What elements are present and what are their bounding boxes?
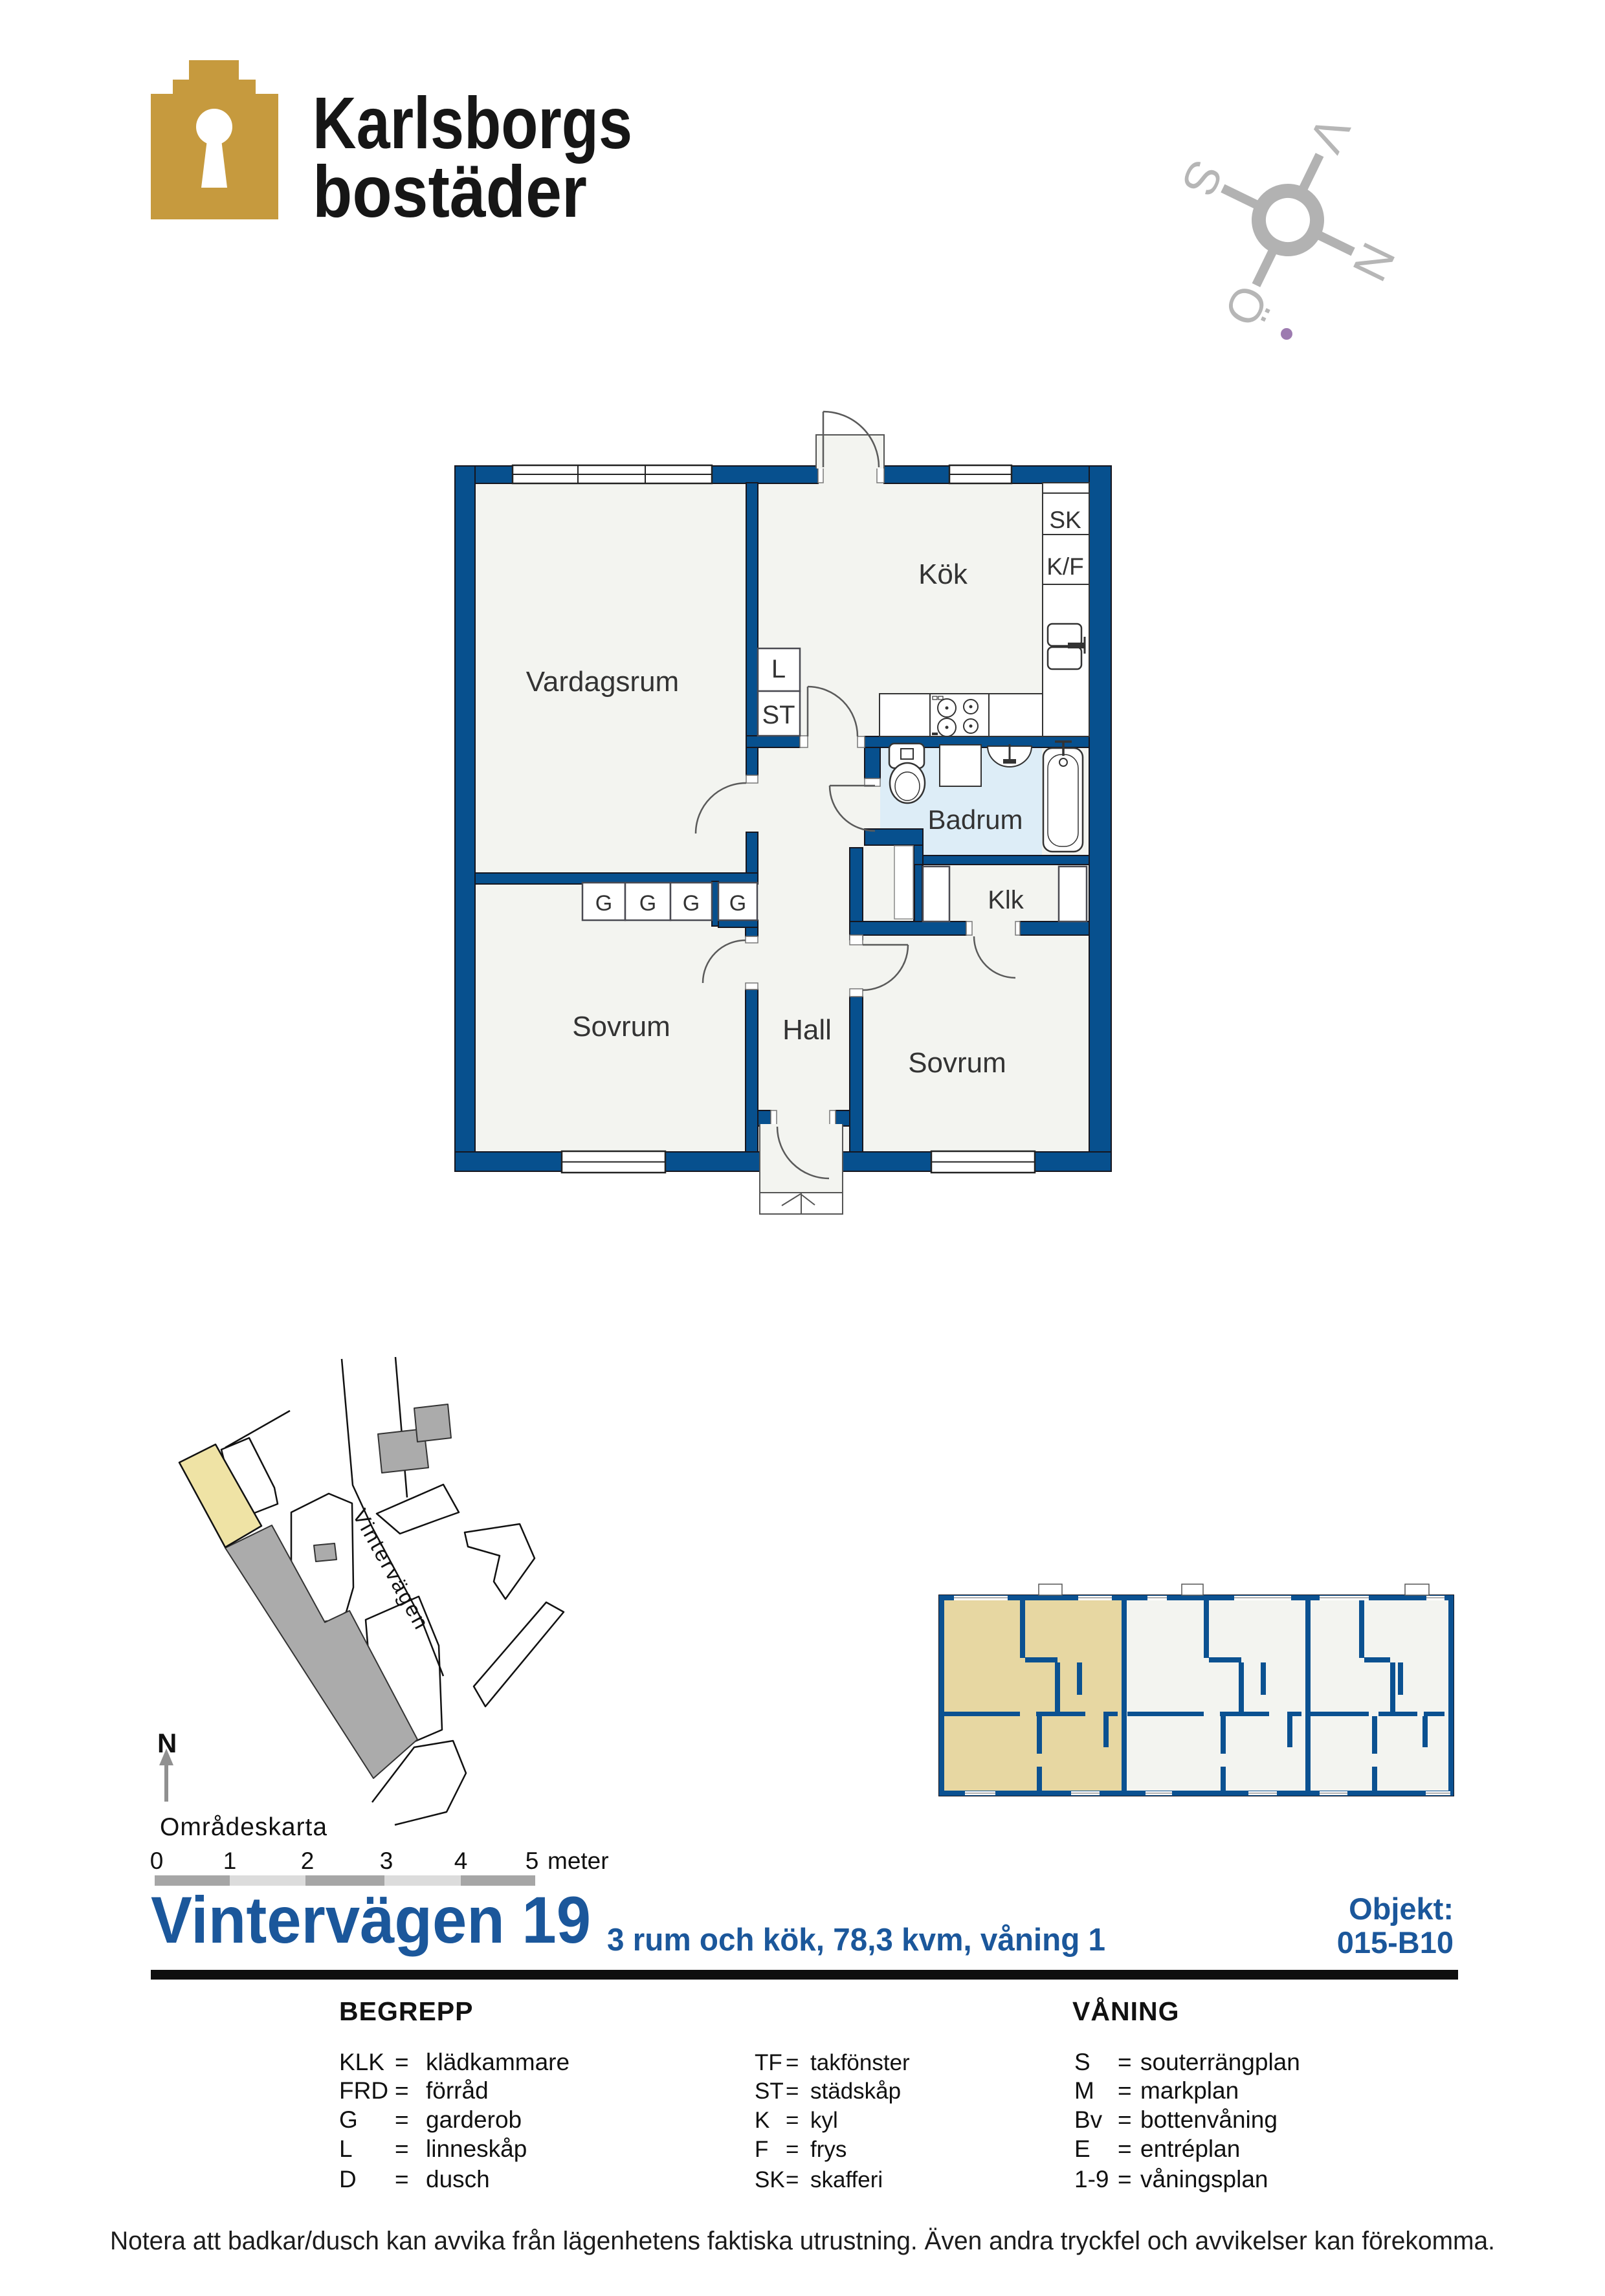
svg-text:=: = [786,2108,799,2133]
svg-text:4: 4 [454,1848,468,1874]
svg-text:Badrum: Badrum [927,804,1023,835]
svg-text:=: = [786,2050,799,2075]
svg-text:souterrängplan: souterrängplan [1140,2049,1300,2075]
svg-text:=: = [395,2077,409,2104]
svg-text:Objekt:: Objekt: [1349,1892,1454,1926]
svg-text:VÅNING: VÅNING [1072,1996,1179,2026]
svg-text:S: S [1074,2049,1090,2075]
svg-text:KLK: KLK [339,2049,384,2075]
svg-text:bostäder: bostäder [313,151,587,232]
svg-text:klädkammare: klädkammare [426,2049,570,2075]
svg-text:skafferi: skafferi [810,2167,883,2192]
svg-text:L: L [339,2136,353,2162]
svg-text:ST: ST [755,2079,784,2104]
svg-text:=: = [1118,2106,1132,2133]
svg-text:ST: ST [762,701,795,729]
svg-text:2: 2 [301,1848,315,1874]
svg-text:=: = [395,2106,409,2133]
svg-text:5: 5 [526,1848,539,1874]
svg-text:=: = [786,2167,799,2192]
svg-text:BEGREPP: BEGREPP [339,1996,474,2026]
svg-text:SK: SK [1049,507,1081,533]
svg-text:entréplan: entréplan [1140,2136,1240,2162]
svg-text:=: = [395,2049,409,2075]
svg-text:K: K [755,2108,769,2133]
svg-text:=: = [786,2079,799,2104]
svg-text:K/F: K/F [1046,553,1084,580]
svg-text:städskåp: städskåp [810,2079,901,2104]
svg-text:Områdeskarta: Områdeskarta [160,1813,327,1841]
svg-text:G: G [339,2106,358,2133]
svg-text:G: G [595,891,612,916]
svg-text:=: = [1118,2077,1132,2104]
svg-text:Vintervägen 19: Vintervägen 19 [151,1883,591,1957]
svg-text:Bv: Bv [1074,2106,1103,2133]
svg-text:kyl: kyl [810,2108,838,2133]
svg-text:garderob: garderob [426,2106,522,2133]
svg-text:M: M [1074,2077,1094,2104]
svg-text:D: D [339,2166,357,2192]
svg-text:Sovrum: Sovrum [572,1011,670,1043]
svg-text:Klk: Klk [988,886,1024,914]
svg-text:=: = [1118,2166,1132,2192]
svg-text:015-B10: 015-B10 [1337,1925,1454,1959]
svg-text:meter: meter [548,1848,609,1874]
svg-text:=: = [1118,2049,1132,2075]
svg-text:takfönster: takfönster [810,2050,910,2075]
svg-text:3 rum och kök, 78,3 kvm, vånin: 3 rum och kök, 78,3 kvm, våning 1 [607,1923,1105,1958]
svg-text:=: = [395,2136,409,2162]
svg-text:Sovrum: Sovrum [908,1047,1006,1079]
svg-text:markplan: markplan [1140,2077,1239,2104]
svg-text:SK: SK [755,2167,785,2192]
svg-text:=: = [395,2166,409,2192]
svg-text:bottenvåning: bottenvåning [1140,2106,1278,2133]
svg-text:1-9: 1-9 [1074,2166,1109,2192]
svg-text:G: G [639,891,656,916]
svg-text:linneskåp: linneskåp [426,2136,527,2162]
svg-text:dusch: dusch [426,2166,490,2192]
svg-text:3: 3 [380,1848,393,1874]
svg-text:=: = [1118,2136,1132,2162]
svg-text:Vardagsrum: Vardagsrum [526,666,679,698]
svg-text:0: 0 [150,1848,164,1874]
svg-text:G: G [683,891,700,916]
svg-text:Hall: Hall [782,1014,832,1046]
svg-text:förråd: förråd [426,2077,489,2104]
svg-text:våningsplan: våningsplan [1140,2166,1268,2192]
svg-text:E: E [1074,2136,1090,2162]
svg-text:Kök: Kök [918,558,968,590]
svg-text:frys: frys [810,2137,847,2162]
svg-text:F: F [755,2137,768,2162]
svg-text:L: L [771,655,786,683]
svg-text:G: G [729,891,746,916]
svg-text:TF: TF [755,2050,782,2075]
svg-text:FRD: FRD [339,2077,388,2104]
svg-text:Notera att badkar/dusch kan av: Notera att badkar/dusch kan avvika från … [110,2227,1495,2255]
svg-text:=: = [786,2137,799,2162]
svg-text:1: 1 [223,1848,237,1874]
